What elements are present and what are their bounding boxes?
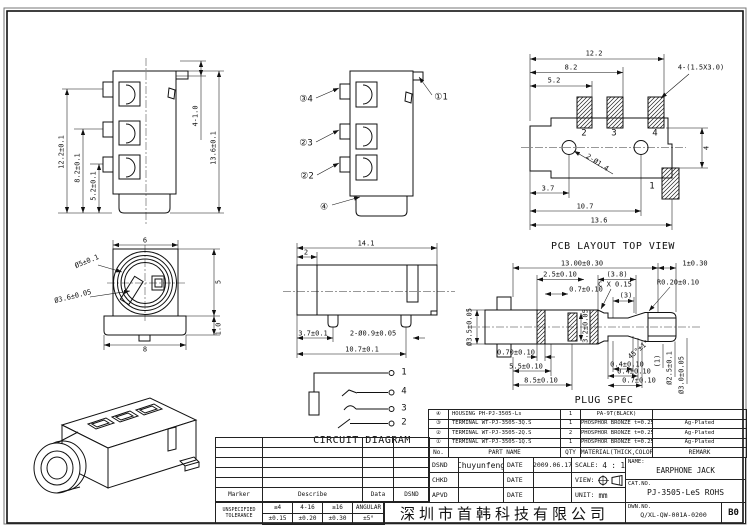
terminal-1-label: 1 <box>401 369 406 378</box>
dim-front-12-2: 12.2±0.1 <box>59 135 66 169</box>
note-pcb-slots: 4-(1.5X3.0) <box>678 65 724 72</box>
dim-pcb-3-7: 3.7 <box>542 186 555 193</box>
circuit-diagram <box>309 371 394 429</box>
unit-value: mm <box>599 491 608 500</box>
terminal-3-label: 3 <box>401 405 406 414</box>
date-label: DATE <box>503 487 534 503</box>
part-no: ② <box>429 429 449 439</box>
dim-pcb-8-2: 8.2 <box>565 65 578 72</box>
part-no: ③ <box>429 419 449 429</box>
dia-plug-3-0: Ø3.0±0.05 <box>679 356 686 394</box>
dim-circle-6: 6 <box>143 238 147 245</box>
dim-plug-3-8: (3.8) <box>606 272 627 279</box>
part-remark: Ag-Plated <box>653 419 747 429</box>
pad-label-1: 1 <box>649 183 654 192</box>
dim-front-5-2: 5.2±0.1 <box>91 171 98 201</box>
dia-plug-3-5: Ø3.5±0.05 <box>467 308 474 346</box>
view-label: VIEW: <box>575 476 595 484</box>
dim-plug-1p: (1) <box>655 355 662 368</box>
name-label: NAME: <box>628 459 743 465</box>
pad-label-2: 2 <box>581 130 586 139</box>
front-circle-dims <box>90 240 220 350</box>
side-view-dims <box>297 243 437 358</box>
unit-cell: UNIT: mm <box>571 487 626 503</box>
revision-row <box>216 448 430 458</box>
dim-side-14-1: 14.1 <box>358 241 375 248</box>
callout-item1-pin1: ①1 <box>434 94 448 103</box>
dim-plug-0-70: 0.70±0.10 <box>497 350 535 357</box>
revision-table: MarkerDescribeDataDSND <box>215 437 430 502</box>
dim-plug-8-5: 8.5±0.10 <box>524 378 558 385</box>
scale-value: 4 : 1 <box>602 461 625 470</box>
front-elevation-view <box>103 71 188 213</box>
dim-circle-1-0: 1.0 <box>216 323 223 336</box>
dim-side-10-7: 10.7±0.1 <box>345 347 379 354</box>
revision-row <box>216 468 430 478</box>
dim-plug-0-4b: 0.4±0.10 <box>617 369 651 376</box>
dim-front-8-2: 8.2±0.1 <box>75 153 82 183</box>
scale-cell: SCALE: 4 : 1 <box>571 457 626 473</box>
isometric-view <box>34 398 199 493</box>
apvd-value <box>458 487 504 503</box>
tolerance-label: UNSPECIFIED TOLERANCE <box>215 502 263 524</box>
chkd-value <box>458 472 504 488</box>
dwnno-value: Q/XL-QW-001A-0200 <box>628 511 719 519</box>
part-name: TERMINAL WT-PJ-3505-1Q.S <box>449 438 561 448</box>
scale-label: SCALE: <box>575 461 598 469</box>
dim-plug-chamfer: C X 0.15 <box>598 282 632 289</box>
company-name: 深圳市首韩科技有限公司 <box>383 502 626 524</box>
catno-value: PJ-3505-LeS ROHS <box>628 488 743 497</box>
part-material: PHOSPHOR BRONZE t=0.25 <box>581 429 653 439</box>
callout-item2-pin2: ②2 <box>300 173 314 182</box>
dim-pcb-10-7: 10.7 <box>577 204 594 211</box>
dim-plug-1: 1±0.30 <box>682 261 707 268</box>
terminal-2-label: 2 <box>401 419 406 428</box>
part-name: HOUSING PH-PJ-3505-Ls <box>449 410 561 420</box>
pad-label-3: 3 <box>611 130 616 139</box>
dim-plug-13: 13.00±0.30 <box>561 261 603 268</box>
catno-cell: CAT.NO.PJ-3505-LeS ROHS <box>625 479 746 503</box>
dim-plug-5-5: 5.5±0.10 <box>509 364 543 371</box>
part-material: PHOSPHOR BRONZE t=0.25 <box>581 438 653 448</box>
dim-front-13-6: 13.6±0.1 <box>211 131 218 165</box>
table-row: ③TERMINAL WT-PJ-3505-3Q.S1PHOSPHOR BRONZ… <box>429 419 747 429</box>
dim-plug-0-7a: 0.7±0.10 <box>569 287 603 294</box>
dim-plug-radius: R0.20±0.10 <box>657 280 699 287</box>
part-remark: Ag-Plated <box>653 438 747 448</box>
callout-item4: ④ <box>320 204 328 213</box>
callout-leaders <box>316 77 432 205</box>
drawing-sheet: 12.2±0.1 8.2±0.1 5.2±0.1 4-1.0 13.6±0.1 … <box>0 0 750 530</box>
pcb-layout-title: PCB LAYOUT TOP VIEW <box>551 242 675 252</box>
part-name: TERMINAL WT-PJ-3505-2Q.S <box>449 429 561 439</box>
dim-pcb-12-2: 12.2 <box>586 51 603 58</box>
tolerance-range-row: ≤44-16≥16ANGULAR <box>263 503 385 514</box>
part-no: ① <box>429 438 449 448</box>
part-title: EARPHONE JACK <box>628 466 743 475</box>
part-material: PHOSPHOR BRONZE t=0.25 <box>581 419 653 429</box>
front-elevation-dims <box>58 61 224 213</box>
view-cell: VIEW: <box>571 472 626 488</box>
designer-name: Chuyunfeng <box>458 457 504 473</box>
apvd-date-value <box>533 487 572 503</box>
unit-label: UNIT: <box>575 491 595 499</box>
dim-side-3-7: 3.7±0.1 <box>298 331 328 338</box>
plug-spec-title: PLUG SPEC <box>575 396 634 406</box>
side-view <box>297 265 437 327</box>
callout-item2-pin3: ②3 <box>299 140 313 149</box>
revision-code: B0 <box>721 502 746 524</box>
table-row: ②TERMINAL WT-PJ-3505-2Q.S2PHOSPHOR BRONZ… <box>429 429 747 439</box>
dim-side-2: 2 <box>304 250 308 257</box>
part-name: TERMINAL WT-PJ-3505-3Q.S <box>449 419 561 429</box>
part-qty: 1 <box>561 419 581 429</box>
dia-plug-2-5: Ø2.5±0.1 <box>667 351 674 385</box>
pad-label-4: 4 <box>652 130 657 139</box>
dim-plug-3: (3) <box>620 293 633 300</box>
dim-pcb-5-2: 5.2 <box>548 78 561 85</box>
dwnno-cell: DWN.NO.Q/XL-QW-001A-0200 <box>625 502 722 524</box>
part-qty: 1 <box>561 410 581 420</box>
part-no: ④ <box>429 410 449 420</box>
dsnd-label: DSND <box>428 457 459 473</box>
callout-elevation-view <box>340 71 423 216</box>
part-qty: 2 <box>561 429 581 439</box>
part-remark: Ag-Plated <box>653 429 747 439</box>
dim-pcb-13-6: 13.6 <box>591 218 608 225</box>
revision-header-row: MarkerDescribeDataDSND <box>216 488 430 502</box>
dwnno-label: DWN.NO. <box>628 504 719 510</box>
name-cell: NAME:EARPHONE JACK <box>625 457 746 480</box>
dim-circle-8: 8 <box>143 347 147 354</box>
dim-circle-5: 5 <box>216 280 223 284</box>
dim-front-4-1-0: 4-1.0 <box>193 105 200 126</box>
part-remark <box>653 410 747 420</box>
chkd-label: CHKD <box>428 472 459 488</box>
table-row: ①TERMINAL WT-PJ-3505-1Q.S1PHOSPHOR BRONZ… <box>429 438 747 448</box>
catno-label: CAT.NO. <box>628 481 743 487</box>
terminal-4-label: 4 <box>401 388 406 397</box>
dim-plug-2-5: 2.5±0.10 <box>543 272 577 279</box>
date-value: 2009.06.17 <box>533 457 572 473</box>
dim-plug-0-7b: 0.7±0.10 <box>622 378 656 385</box>
revision-row <box>216 458 430 468</box>
dim-plug-3-2: 3.2±0.05 <box>583 309 590 343</box>
date-label: DATE <box>503 457 534 473</box>
parts-table: ④HOUSING PH-PJ-3505-Ls1PA-9T(BLACK) ③TER… <box>428 409 747 458</box>
table-row: ④HOUSING PH-PJ-3505-Ls1PA-9T(BLACK) <box>429 410 747 420</box>
projection-view-icon <box>598 475 624 486</box>
part-qty: 1 <box>561 438 581 448</box>
dim-pcb-4: 4 <box>704 146 711 150</box>
chkd-date-value <box>533 472 572 488</box>
note-side-pins: 2-Ø0.9±0.05 <box>350 331 396 338</box>
tolerance-table: ≤44-16≥16ANGULAR ±0.15±0.20±0.30±5° <box>262 502 385 525</box>
date-label: DATE <box>503 472 534 488</box>
tolerance-value-row: ±0.15±0.20±0.30±5° <box>263 514 385 525</box>
apvd-label: APVD <box>428 487 459 503</box>
part-material: PA-9T(BLACK) <box>581 410 653 420</box>
callout-item3-pin4: ③4 <box>299 96 313 105</box>
revision-row <box>216 438 430 448</box>
revision-row <box>216 478 430 488</box>
